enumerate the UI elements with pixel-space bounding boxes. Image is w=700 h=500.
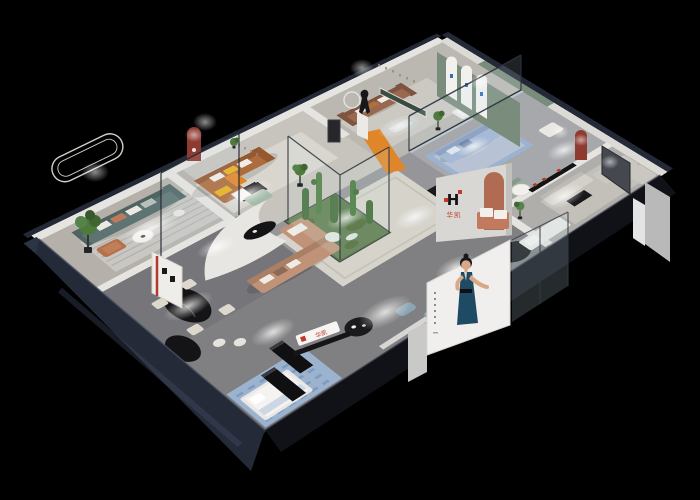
floor-plan-plane [40,42,660,430]
right-corner-column-inner [633,198,645,246]
right-corner-column [645,182,670,262]
showroom-render: H 华凯 华凯 [0,0,700,500]
rounded-line-relief [48,129,128,186]
